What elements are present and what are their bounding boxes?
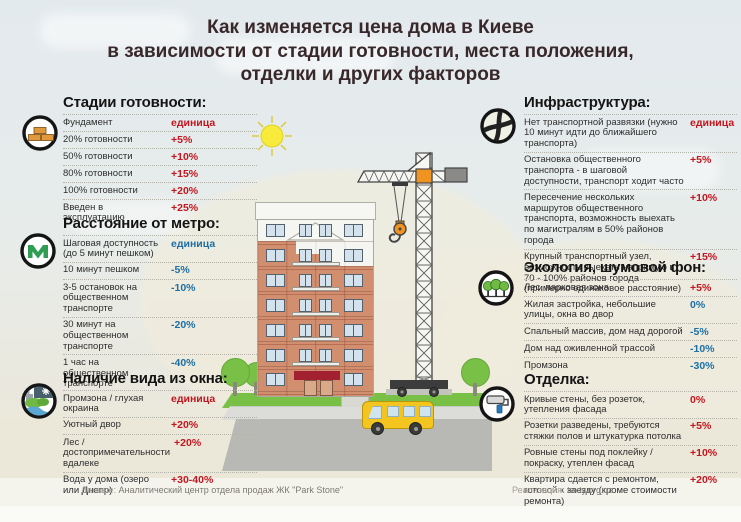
- factor-value: -10%: [690, 344, 715, 356]
- factor-value: +20%: [171, 186, 198, 198]
- section-title: Наличие вида из окна:: [63, 370, 257, 387]
- building-window: [319, 224, 332, 237]
- data-source-value: Аналитический центр отдела продаж ЖК "Pa…: [119, 485, 344, 495]
- building-window: [266, 349, 285, 362]
- factor-row: Жилая застройка, небольшие улицы, окна в…: [524, 296, 737, 323]
- building-window: [319, 349, 332, 362]
- balcony: [292, 312, 340, 316]
- factor-label: Пересечение нескольких маршрутов обществ…: [524, 193, 690, 247]
- factor-value: -5%: [171, 265, 190, 277]
- factor-label: 80% готовности: [63, 169, 171, 180]
- factor-row: Фундаментединица: [63, 114, 257, 131]
- factor-value: 0%: [690, 300, 705, 312]
- factor-row: Уютный двор+20%: [63, 417, 257, 434]
- factor-label: Жилая застройка, небольшие улицы, окна в…: [524, 300, 690, 321]
- bus-wheel: [409, 422, 422, 435]
- trees-icon: [477, 269, 515, 307]
- factor-label: Остановка общественного транспорта - в ш…: [524, 155, 690, 187]
- factor-row: Нет транспортной развязки (нужно 10 мину…: [524, 114, 737, 152]
- factor-row: Спальный массив, дом над дорогой-5%: [524, 323, 737, 340]
- building-window: [344, 274, 363, 287]
- factor-label: 50% готовности: [63, 152, 171, 163]
- factor-label: Кривые стены, без розеток, утепления фас…: [524, 395, 690, 416]
- factor-row: Кривые стены, без розеток, утепления фас…: [524, 391, 737, 418]
- factor-value: +5%: [690, 155, 711, 167]
- data-source-label: Данные:: [81, 485, 116, 495]
- bus-window: [387, 406, 399, 417]
- road: [222, 419, 492, 471]
- building-window: [344, 349, 363, 362]
- factor-label: 30 минут на общественном транспорте: [63, 320, 171, 352]
- factor-label: Лес / достопримечательности вдалеке: [63, 438, 174, 470]
- factor-value: +10%: [171, 152, 198, 164]
- road-junction-icon: [479, 107, 517, 145]
- building-window: [299, 324, 312, 337]
- building-window: [344, 324, 363, 337]
- section-title: Экология, шумовой фон:: [524, 259, 737, 276]
- building-parapet: [255, 202, 376, 220]
- factor-value: 0%: [690, 395, 705, 407]
- factor-value: +25%: [171, 203, 198, 215]
- page-title: Как изменяется цена дома в Киеве в завис…: [0, 16, 741, 87]
- factor-value: единица: [690, 118, 734, 130]
- building-window: [319, 274, 332, 287]
- title-line-2: в зависимости от стадии готовности, мест…: [0, 40, 741, 64]
- window-view-icon: [20, 382, 58, 420]
- section-metro-distance: Расстояние от метро: Шаговая доступность…: [63, 215, 257, 392]
- factor-row: 80% готовности+15%: [63, 165, 257, 182]
- factor-value: +10%: [690, 448, 717, 460]
- factor-label: 100% готовности: [63, 186, 171, 197]
- factor-value: +5%: [171, 135, 192, 147]
- building-window: [299, 349, 312, 362]
- building-window: [299, 299, 312, 312]
- section-title: Расстояние от метро:: [63, 215, 257, 232]
- building-window: [319, 249, 332, 262]
- factor-value: -5%: [690, 327, 709, 339]
- factor-row: Розетки разведены, требуются стяжки поло…: [524, 418, 737, 445]
- section-title: Отделка:: [524, 371, 737, 388]
- tree-trunk: [473, 383, 477, 396]
- building-window: [319, 299, 332, 312]
- balcony: [292, 287, 340, 291]
- bus-wheel: [371, 422, 384, 435]
- section-title: Инфраструктура:: [524, 94, 737, 111]
- data-source: Данные: Аналитический центр отдела прода…: [81, 485, 343, 495]
- building-window: [266, 224, 285, 237]
- factor-label: Фундамент: [63, 118, 171, 129]
- building-window: [266, 299, 285, 312]
- factor-value: +20%: [690, 475, 717, 487]
- paint-roller-icon: [478, 385, 516, 423]
- section-readiness-stages: Стадии готовности: Фундаментединица20% г…: [63, 94, 257, 226]
- title-line-1: Как изменяется цена дома в Киеве: [0, 16, 741, 40]
- building-window: [299, 224, 312, 237]
- building-window: [266, 249, 285, 262]
- balcony: [292, 337, 340, 341]
- entrance-door: [304, 380, 317, 396]
- factor-value: единица: [171, 239, 215, 251]
- bus-window: [403, 406, 415, 417]
- metro-icon: [19, 232, 57, 270]
- factor-value: единица: [171, 118, 215, 130]
- factor-value: +10%: [690, 193, 717, 205]
- building-window: [266, 324, 285, 337]
- bus-window: [419, 406, 431, 417]
- factor-row: Ровные стены под поклейку / покраску, ут…: [524, 445, 737, 472]
- factor-value: +5%: [690, 421, 711, 433]
- factor-label: 3-5 остановок на общественном транспорте: [63, 283, 171, 315]
- building-window: [319, 324, 332, 337]
- factor-row: 50% готовности+10%: [63, 148, 257, 165]
- factor-label: 20% готовности: [63, 135, 171, 146]
- section-window-view: Наличие вида из окна: Промзона / глухая …: [63, 370, 257, 499]
- factor-row: 10 минут пешком-5%: [63, 262, 257, 279]
- credit-value: texty.org.ua: [567, 485, 613, 495]
- factor-label: Розетки разведены, требуются стяжки поло…: [524, 421, 690, 442]
- factor-row: Пересечение нескольких маршрутов обществ…: [524, 189, 737, 248]
- credit-label: Реализация:: [512, 485, 565, 495]
- sidewalk: [222, 406, 492, 420]
- factor-label: Ровные стены под поклейку / покраску, ут…: [524, 448, 690, 469]
- factor-label: Нет транспортной развязки (нужно 10 мину…: [524, 118, 690, 150]
- credit: Реализация: texty.org.ua: [512, 485, 613, 495]
- factor-row: 3-5 остановок на общественном транспорте…: [63, 279, 257, 317]
- factor-row: Дом над оживленной трассой-10%: [524, 340, 737, 357]
- building-window: [344, 249, 363, 262]
- building-body: [257, 219, 374, 397]
- factor-row: Промзона / глухая окраинаединица: [63, 390, 257, 417]
- building-window: [299, 249, 312, 262]
- infographic-page: Как изменяется цена дома в Киеве в завис…: [0, 0, 741, 522]
- factor-value: -10%: [171, 283, 196, 295]
- entrance-band: [294, 371, 340, 380]
- factor-label: Лес, парковая зона: [524, 283, 690, 294]
- factor-label: Промзона: [524, 361, 690, 372]
- factor-label: Уютный двор: [63, 420, 171, 431]
- factor-row: 20% готовности+5%: [63, 131, 257, 148]
- factor-row: 100% готовности+20%: [63, 182, 257, 199]
- section-title: Стадии готовности:: [63, 94, 257, 111]
- factor-label: Промзона / глухая окраина: [63, 394, 171, 415]
- building-window: [299, 274, 312, 287]
- factor-value: -40%: [171, 358, 196, 370]
- building-window: [266, 373, 285, 386]
- factor-label: Шаговая доступность (до 5 минут пешком): [63, 239, 171, 260]
- factor-row: Остановка общественного транспорта - в ш…: [524, 152, 737, 190]
- balcony: [292, 362, 340, 366]
- factor-value: единица: [171, 394, 215, 406]
- building-window: [344, 373, 363, 386]
- building-window: [344, 299, 363, 312]
- factor-row: Лес, парковая зона+5%: [524, 279, 737, 296]
- factor-value: -20%: [171, 320, 196, 332]
- title-line-3: отделки и других факторов: [0, 63, 741, 87]
- factor-row: 30 минут на общественном транспорте-20%: [63, 317, 257, 355]
- factor-value: +20%: [174, 438, 201, 450]
- factor-value: +15%: [171, 169, 198, 181]
- entrance-door: [320, 380, 333, 396]
- factor-label: Спальный массив, дом над дорогой: [524, 327, 690, 338]
- factor-label: Дом над оживленной трассой: [524, 344, 690, 355]
- building-window: [344, 224, 363, 237]
- factor-value: +5%: [690, 283, 711, 295]
- factor-value: +20%: [171, 420, 198, 432]
- factor-label: 10 минут пешком: [63, 265, 171, 276]
- section-ecology: Экология, шумовой фон: Лес, парковая зон…: [524, 259, 737, 374]
- balcony: [292, 262, 340, 266]
- building-window: [266, 274, 285, 287]
- bricks-icon: [21, 114, 59, 152]
- factor-row: Лес / достопримечательности вдалеке+20%: [63, 434, 257, 472]
- apartment-building: [255, 202, 376, 397]
- bus: [362, 401, 434, 434]
- factor-row: Шаговая доступность (до 5 минут пешком)е…: [63, 235, 257, 262]
